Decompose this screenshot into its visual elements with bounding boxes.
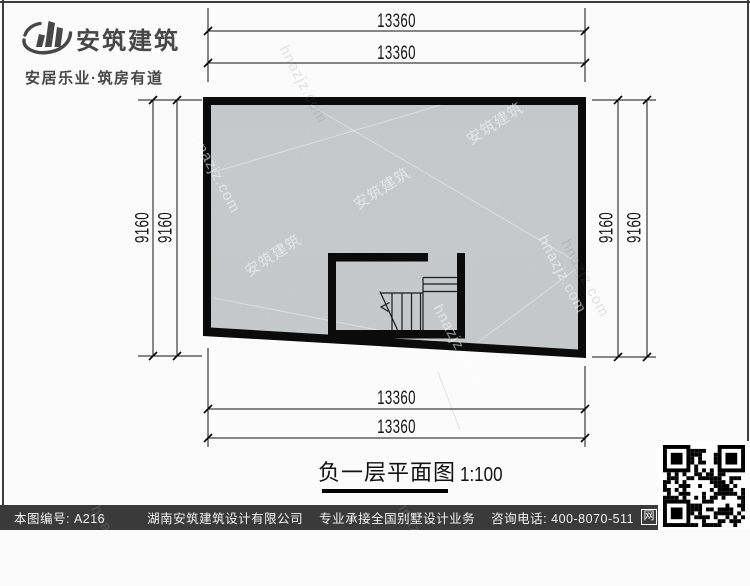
consult-phone: 咨询电话: 400-8070-511 [491,508,634,527]
logo: 安筑建筑 安居乐业·筑房有道 [20,16,180,88]
dim-top-inner: 13360 [265,44,529,63]
drawing-scale: 1:100 [460,464,503,487]
dim-top-outer: 13360 [265,12,529,31]
footer-company-line: 湖南安筑建筑设计有限公司 专业承接全国别墅设计业务 咨询电话: 400-8070… [147,508,650,527]
dim-bottom-outer: 13360 [265,418,529,437]
dim-left-inner: 9160 [157,186,176,270]
drawing-title: 负一层平面图 [318,455,450,487]
company-name: 湖南安筑建筑设计有限公司 [147,508,303,527]
web-badge-icon: 网 [641,509,657,525]
floorplan-sheet: { "logo": { "name": "安筑建筑", "tagline": "… [0,0,750,530]
dim-bottom-inner: 13360 [265,389,529,408]
footer-bar: 本图编号: A216 湖南安筑建筑设计有限公司 专业承接全国别墅设计业务 咨询电… [0,505,750,530]
dim-left-outer: 9160 [134,186,153,270]
floor-slab [203,97,586,358]
logo-name: 安筑建筑 [76,21,180,56]
dim-right-inner: 9160 [598,186,617,270]
logo-tagline: 安居乐业·筑房有道 [25,67,180,88]
sheet-number: 本图编号: A216 [14,508,105,527]
title-underline [322,489,448,493]
qr-code [658,441,750,530]
dim-right-outer: 9160 [626,186,645,270]
logo-building-icon [20,16,74,61]
service-slogan: 专业承接全国别墅设计业务 [319,508,475,527]
